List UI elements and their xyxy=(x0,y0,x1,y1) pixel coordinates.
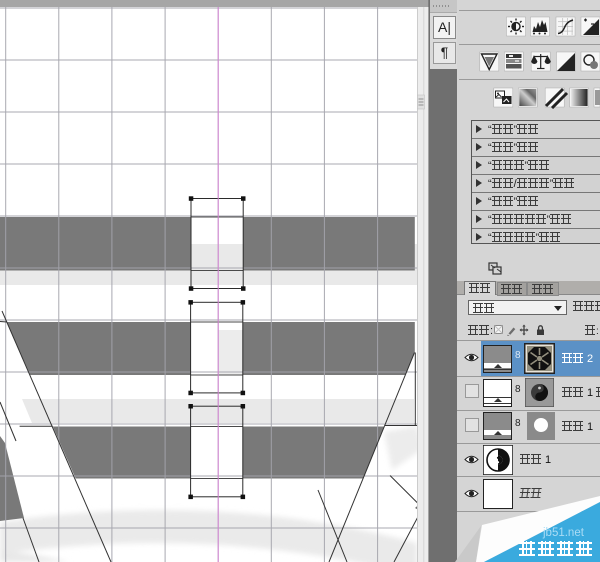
svg-text:jb51.net: jb51.net xyxy=(542,527,585,539)
